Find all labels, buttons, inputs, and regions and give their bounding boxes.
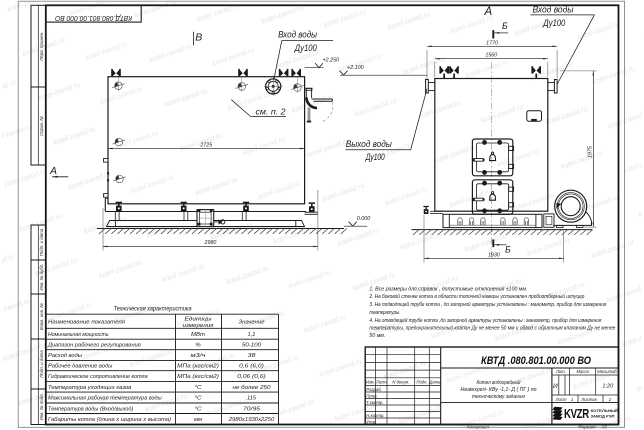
svg-text:Значение: Значение [239, 320, 265, 326]
svg-text:Вход воды: Вход воды [278, 30, 317, 40]
svg-text:Температура уходящих газов: Температура уходящих газов [48, 385, 131, 391]
svg-text:1560: 1560 [485, 53, 497, 59]
svg-text:МВт: МВт [191, 332, 205, 338]
svg-text:Взам. инв. №: Взам. инв. № [39, 303, 44, 330]
svg-text:температуры, предохранительный: температуры, предохранительный клапан Ду… [369, 325, 615, 332]
svg-text:Габариты котла (длина х ширина: Габариты котла (длина х ширина х высота) [48, 417, 171, 423]
svg-text:1. Все размеры для справок , д: 1. Все размеры для справок , допустимые … [369, 287, 527, 293]
svg-text:1930: 1930 [488, 252, 500, 258]
svg-text:°С: °С [195, 406, 203, 412]
svg-text:%: % [195, 342, 201, 348]
svg-text:мм: мм [194, 417, 202, 423]
svg-text:Гидравлическое сопротивление к: Гидравлическое сопротивление котла [48, 374, 148, 380]
svg-text:Подп. и дата: Подп. и дата [39, 228, 44, 256]
svg-text:м3/ч: м3/ч [191, 353, 206, 359]
svg-text:2725: 2725 [199, 143, 212, 149]
svg-text:Максимальная рабочая температу: Максимальная рабочая температура воды [48, 396, 162, 402]
svg-text:А: А [49, 165, 57, 177]
svg-text:+2.100: +2.100 [347, 65, 364, 71]
svg-text:Наименование показателя: Наименование показателя [48, 320, 125, 326]
svg-text:0,6 (6,0): 0,6 (6,0) [239, 364, 264, 370]
svg-text:3. На подводящей трубе котла ,: 3. На подводящей трубе котла , до запорн… [369, 301, 606, 308]
svg-text:А3: А3 [600, 424, 607, 429]
svg-text:В: В [195, 32, 202, 44]
svg-text:Номинальная мощность: Номинальная мощность [48, 332, 109, 338]
svg-text:Разраб.: Разраб. [366, 387, 382, 392]
svg-text:115: 115 [247, 396, 257, 402]
svg-text:70/95: 70/95 [243, 406, 261, 412]
svg-text:Инв. № подл.: Инв. № подл. [39, 393, 44, 420]
svg-text:А: А [484, 6, 493, 18]
svg-text:°С: °С [195, 396, 203, 402]
svg-text:Н.контр.: Н.контр. [366, 413, 384, 418]
svg-text:Heatexpert- КВу -1,1- Д ( ПГ ): Heatexpert- КВу -1,1- Д ( ПГ ) по [461, 387, 537, 393]
svg-text:Расход воды: Расход воды [48, 353, 82, 359]
svg-text:1: 1 [571, 397, 573, 402]
svg-text:2980х1930х2250: 2980х1930х2250 [228, 417, 275, 423]
svg-text:0,06 (0,6): 0,06 (0,6) [237, 374, 266, 380]
svg-text:Лист: Лист [375, 380, 387, 385]
svg-text:Температура воды (Вход/выход): Температура воды (Вход/выход) [48, 406, 133, 412]
svg-text:измерения: измерения [183, 323, 214, 329]
svg-text:0.000: 0.000 [357, 216, 371, 222]
svg-text:38: 38 [248, 353, 257, 359]
svg-text:Ду100: Ду100 [542, 18, 565, 28]
svg-text:Изм.: Изм. [366, 380, 375, 385]
svg-text:Б: Б [505, 245, 511, 255]
svg-text:Единицы: Единицы [185, 316, 212, 322]
svg-text:Масштаб: Масштаб [597, 369, 617, 374]
svg-text:температуры.: температуры. [369, 310, 400, 316]
svg-text:Справ. №: Справ. № [39, 116, 44, 136]
svg-text:Рабочее давление воды: Рабочее давление воды [48, 364, 112, 370]
svg-text:Т.контр.: Т.контр. [366, 400, 383, 405]
svg-text:Б: Б [502, 21, 508, 31]
svg-text:Пров.: Пров. [366, 393, 377, 398]
svg-text:50 мм.: 50 мм. [369, 333, 385, 339]
svg-text:КВТД.080.801.00.000 ВО: КВТД.080.801.00.000 ВО [55, 14, 133, 21]
svg-text:ЗАВОД РЭП: ЗАВОД РЭП [591, 414, 615, 419]
svg-text:Ду100: Ду100 [294, 43, 317, 53]
svg-text:Диапазон рабочего регулировани: Диапазон рабочего регулирования [47, 342, 141, 348]
svg-text:КОТЕЛЬНЫЙ: КОТЕЛЬНЫЙ [591, 408, 619, 413]
svg-text:Котел водогрейный: Котел водогрейный [477, 379, 521, 386]
svg-text:Вход воды: Вход воды [533, 5, 574, 15]
svg-text:Утв.: Утв. [366, 419, 376, 424]
svg-text:Инв. № дубл.: Инв. № дубл. [39, 263, 44, 290]
svg-text:Техническая характеристика: Техническая характеристика [114, 305, 192, 312]
svg-text:Лит.: Лит. [555, 369, 566, 374]
svg-text:Подп.: Подп. [416, 380, 427, 385]
svg-text:Ду100: Ду100 [365, 152, 385, 162]
svg-text:50-100: 50-100 [242, 342, 262, 348]
svg-text:1770: 1770 [486, 40, 498, 46]
svg-text:КВТД .080.801.00.000 ВО: КВТД .080.801.00.000 ВО [481, 355, 591, 367]
svg-text:+2.250: +2.250 [323, 57, 340, 63]
svg-text:техническому заданию: техническому заданию [472, 394, 525, 400]
svg-text:Дата: Дата [428, 380, 441, 385]
svg-text:см. п. 2: см. п. 2 [256, 106, 286, 116]
svg-text:Копировал: Копировал [467, 424, 489, 429]
svg-text:°С: °С [195, 385, 203, 391]
svg-text:N докум.: N докум. [392, 380, 409, 385]
svg-text:2. На боковой стенке котла в о: 2. На боковой стенке котла в области топ… [369, 293, 585, 300]
svg-text:1,1: 1,1 [248, 332, 256, 338]
svg-text:KVZR: KVZR [564, 407, 589, 421]
svg-text:4. На отводящей трубе котла ,д: 4. На отводящей трубе котла ,до запорной… [369, 317, 601, 324]
svg-text:2980: 2980 [204, 240, 217, 246]
svg-text:Выход воды: Выход воды [346, 139, 392, 149]
svg-text:Лист: Лист [555, 397, 567, 402]
svg-text:МПа (кгс/см2): МПа (кгс/см2) [177, 364, 219, 370]
svg-text:И: И [553, 383, 558, 390]
svg-text:1975: 1975 [587, 146, 593, 158]
svg-text:Подп. и дата: Подп. и дата [39, 350, 44, 378]
svg-text:Формат: Формат [578, 424, 596, 429]
svg-text:Масса: Масса [577, 369, 590, 374]
svg-text:Листов: Листов [580, 397, 597, 402]
svg-text:Перв. примен.: Перв. примен. [39, 32, 44, 61]
svg-text:МПа (кгс/см2): МПа (кгс/см2) [177, 374, 219, 380]
svg-text:не более 250: не более 250 [233, 385, 272, 391]
svg-text:1:20: 1:20 [602, 384, 614, 390]
